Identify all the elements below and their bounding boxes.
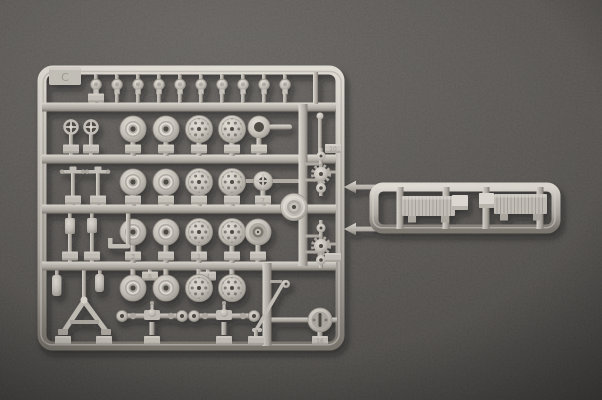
sprue-photo: C xyxy=(0,0,602,400)
vignette xyxy=(0,0,602,400)
photo-canvas: C xyxy=(0,0,602,400)
